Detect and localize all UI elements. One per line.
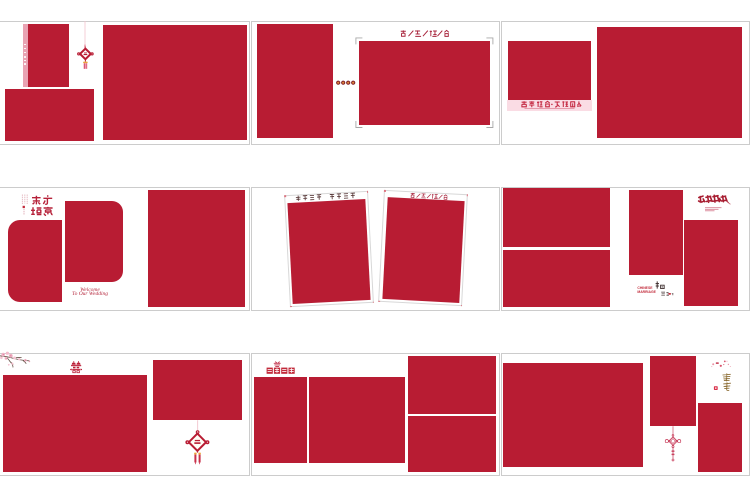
svg-text:MARRIAGE: MARRIAGE — [637, 290, 656, 294]
